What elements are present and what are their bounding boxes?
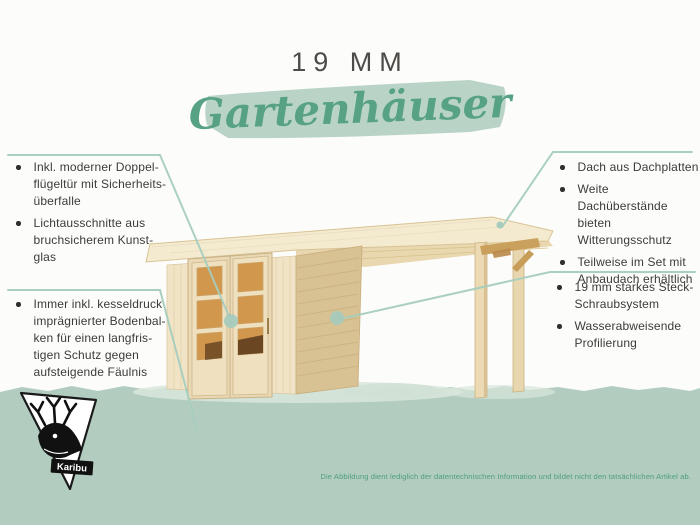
bottom-band [0,386,700,525]
feature-line: imprägnierter Bodenbal- [34,313,166,330]
feature-line: flügeltür mit Sicherheits- [34,176,167,193]
feature-line: bieten Witterungsschutz [578,215,700,249]
feature-line: Lichtausschnitte aus [34,215,154,232]
feature-line: Schraubsystem [575,296,694,313]
brand-logo-text: Karibu [57,461,88,474]
bullet-dot [16,302,21,307]
bullet-dot [560,187,565,192]
callout-left-top: Inkl. moderner Doppel- flügeltür mit Sic… [8,159,176,271]
garden-house-illustration [146,217,553,399]
bullet-dot [16,165,21,170]
feature-line: aufsteigende Fäulnis [34,364,166,381]
feature-item: Weite Dachüberstände bieten Witterungssc… [552,181,700,249]
bullet-dot [557,324,562,329]
bullet-dot [557,285,562,290]
page-title: 19 MM [0,47,700,78]
feature-line: Immer inkl. kesseldruck [34,296,166,313]
feature-line: 19 mm starkes Steck- [575,279,694,296]
callout-right-bottom: 19 mm starkes Steck- Schraubsystem Wasse… [549,279,700,357]
feature-line: Wasserabweisende [575,318,682,335]
callout-dot-roof [497,222,504,229]
feature-item: Wasserabweisende Profilierung [549,318,700,352]
callout-dot-door [224,314,238,328]
feature-item: Dach aus Dachplatten [552,159,700,176]
callout-left-bottom: Immer inkl. kesseldruck imprägnierter Bo… [8,296,176,386]
bullet-dot [560,260,565,265]
feature-line: Teilweise im Set mit [578,254,693,271]
feature-line: Weite Dachüberstände [578,181,700,215]
feature-line: Dach aus Dachplatten [578,159,699,176]
feature-line: bruchsicherem Kunst- [34,232,154,249]
disclaimer-text: Die Abbildung dient lediglich der datent… [320,472,691,481]
feature-item: Inkl. moderner Doppel- flügeltür mit Sic… [8,159,176,210]
callout-right-top: Dach aus Dachplatten Weite Dachüberständ… [552,159,700,293]
page: Karibu 19 MM Gartenhäuser Inkl. moderner… [0,0,700,525]
feature-item: 19 mm starkes Steck- Schraubsystem [549,279,700,313]
feature-line: Inkl. moderner Doppel- [34,159,167,176]
feature-line: überfalle [34,193,167,210]
callout-dot-wall [330,311,344,325]
feature-line: ken für einen langfris- [34,330,166,347]
feature-item: Immer inkl. kesseldruck imprägnierter Bo… [8,296,176,381]
bullet-dot [560,165,565,170]
feature-line: Profilierung [575,335,682,352]
bullet-dot [16,221,21,226]
ground-shadow [445,385,555,399]
feature-line: glas [34,249,154,266]
feature-item: Lichtausschnitte aus bruchsicherem Kunst… [8,215,176,266]
feature-line: tigen Schutz gegen [34,347,166,364]
